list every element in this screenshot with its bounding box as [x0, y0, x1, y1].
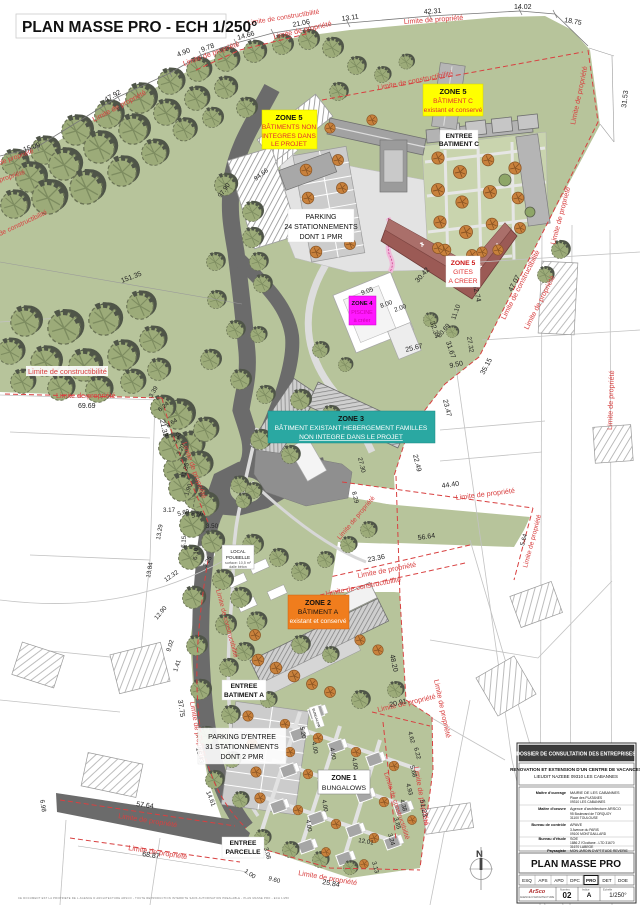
svg-text:Agence d'architecture ARSCO: Agence d'architecture ARSCO [570, 807, 621, 811]
svg-text:PRO: PRO [586, 878, 596, 883]
svg-text:BATIMENT C: BATIMENT C [439, 141, 479, 148]
svg-text:Indice: Indice [582, 888, 590, 892]
svg-text:APS: APS [538, 878, 547, 883]
svg-text:6.15: 6.15 [180, 535, 188, 548]
svg-text:BÂTIMENTS NON: BÂTIMENTS NON [262, 122, 316, 131]
svg-text:Paysagiste: Paysagiste [547, 849, 566, 853]
svg-text:MON JARDIN D'APTITUDE REVERIE: MON JARDIN D'APTITUDE REVERIE [570, 849, 628, 853]
svg-text:dalle béton: dalle béton [229, 565, 247, 569]
svg-text:ZONE 2: ZONE 2 [305, 598, 331, 607]
svg-text:CE DOCUMENT EST LA PROPRIETE D: CE DOCUMENT EST LA PROPRIETE DE L AGENCE… [18, 896, 289, 900]
svg-text:6.10: 6.10 [192, 547, 200, 560]
svg-text:DOSSIER DE CONSULTATION DES EN: DOSSIER DE CONSULTATION DES ENTREPRISES [516, 752, 636, 758]
svg-text:existant et conservé: existant et conservé [424, 107, 483, 114]
svg-text:A: A [587, 892, 592, 899]
svg-text:31 STATIONNEMENTS: 31 STATIONNEMENTS [205, 744, 279, 751]
svg-text:69.69: 69.69 [78, 403, 96, 410]
svg-text:APAVE: APAVE [570, 823, 583, 827]
svg-text:09310 LES CABANNES: 09310 LES CABANNES [570, 800, 606, 804]
svg-text:POUBELLE: POUBELLE [226, 555, 250, 560]
svg-text:PISCINE: PISCINE [351, 310, 373, 316]
svg-text:PLAN MASSE PRO - ECH 1/250°: PLAN MASSE PRO - ECH 1/250° [22, 19, 257, 36]
svg-text:Limite de propriété: Limite de propriété [56, 391, 116, 400]
svg-text:PARCELLE: PARCELLE [225, 849, 261, 856]
svg-text:3.50: 3.50 [206, 523, 219, 530]
svg-text:DET: DET [602, 878, 611, 883]
svg-text:02: 02 [563, 891, 572, 900]
svg-text:GITES: GITES [453, 269, 473, 276]
svg-text:PARKING D'ENTREE: PARKING D'ENTREE [208, 734, 276, 741]
svg-text:BÂTIMENT C: BÂTIMENT C [433, 96, 473, 105]
svg-text:ENTREE: ENTREE [231, 683, 258, 690]
svg-text:PLAN MASSE PRO: PLAN MASSE PRO [531, 859, 621, 870]
svg-text:Maître d'oeuvre: Maître d'oeuvre [538, 807, 566, 811]
svg-text:42.31: 42.31 [424, 8, 442, 16]
svg-text:DPC: DPC [570, 878, 580, 883]
svg-text:BUNGALOWS: BUNGALOWS [322, 785, 367, 792]
svg-text:Bureau d'étude: Bureau d'étude [539, 837, 567, 841]
svg-text:LOCAL: LOCAL [230, 549, 246, 554]
svg-text:ZONE 5: ZONE 5 [451, 260, 476, 267]
svg-text:NON INTEGRE DANS LE PROJET: NON INTEGRE DANS LE PROJET [299, 434, 403, 441]
svg-text:31100 TOULOUSE: 31100 TOULOUSE [570, 816, 599, 820]
svg-text:INTEGRES DANS: INTEGRES DANS [262, 133, 316, 140]
svg-text:14.02: 14.02 [514, 4, 532, 11]
svg-text:Maître d'ouvrage: Maître d'ouvrage [536, 791, 566, 795]
svg-text:LE PROJET: LE PROJET [271, 141, 307, 148]
svg-text:ZONE 4: ZONE 4 [352, 301, 374, 307]
svg-text:MAIRIE DE LES CABANNES: MAIRIE DE LES CABANNES [570, 791, 620, 795]
svg-text:DOE: DOE [618, 878, 628, 883]
svg-text:ZONE 5: ZONE 5 [275, 113, 302, 122]
svg-text:Bureau de contrôle: Bureau de contrôle [531, 823, 566, 827]
svg-text:DONT 1 PMR: DONT 1 PMR [299, 234, 342, 241]
svg-text:PARKING: PARKING [306, 214, 337, 221]
svg-text:BATIMENT A: BATIMENT A [224, 692, 264, 699]
svg-text:09100 MONTGAILLARD: 09100 MONTGAILLARD [570, 832, 607, 836]
svg-text:Echelle: Echelle [603, 888, 613, 892]
svg-text:BÂTIMENT A: BÂTIMENT A [298, 607, 339, 616]
svg-text:APD: APD [554, 878, 564, 883]
svg-text:A CREER: A CREER [449, 278, 478, 285]
svg-text:ESQ: ESQ [522, 878, 532, 883]
svg-text:ZONE 3: ZONE 3 [338, 414, 364, 423]
svg-text:ZONE 1: ZONE 1 [331, 775, 356, 782]
svg-text:3.17: 3.17 [163, 507, 176, 514]
svg-text:1/250°: 1/250° [609, 893, 627, 899]
svg-text:RENOVATION ET EXTENSION D'UN C: RENOVATION ET EXTENSION D'UN CENTRE DE V… [510, 767, 640, 772]
svg-text:24 STATIONNEMENTS: 24 STATIONNEMENTS [284, 224, 358, 231]
svg-text:ArSco: ArSco [528, 889, 546, 895]
svg-text:LIEUDIT NAZEBE 09310 LES CABAN: LIEUDIT NAZEBE 09310 LES CABANNES [534, 774, 618, 779]
svg-text:ZONE 5: ZONE 5 [439, 87, 466, 96]
svg-text:ENTREE: ENTREE [230, 840, 257, 847]
svg-text:ENTREE: ENTREE [446, 133, 473, 140]
svg-text:AGENCE D'ARCHITECTURE: AGENCE D'ARCHITECTURE [520, 895, 555, 899]
svg-text:BÂTIMENT EXISTANT HEBERGEMENT: BÂTIMENT EXISTANT HEBERGEMENT FAMILLES [275, 423, 428, 432]
svg-text:DONT 2 PMR: DONT 2 PMR [220, 754, 263, 761]
svg-text:à créer: à créer [354, 318, 371, 324]
svg-text:existant et conservé: existant et conservé [290, 618, 347, 625]
svg-text:Limite de constructibilité: Limite de constructibilité [28, 367, 107, 376]
